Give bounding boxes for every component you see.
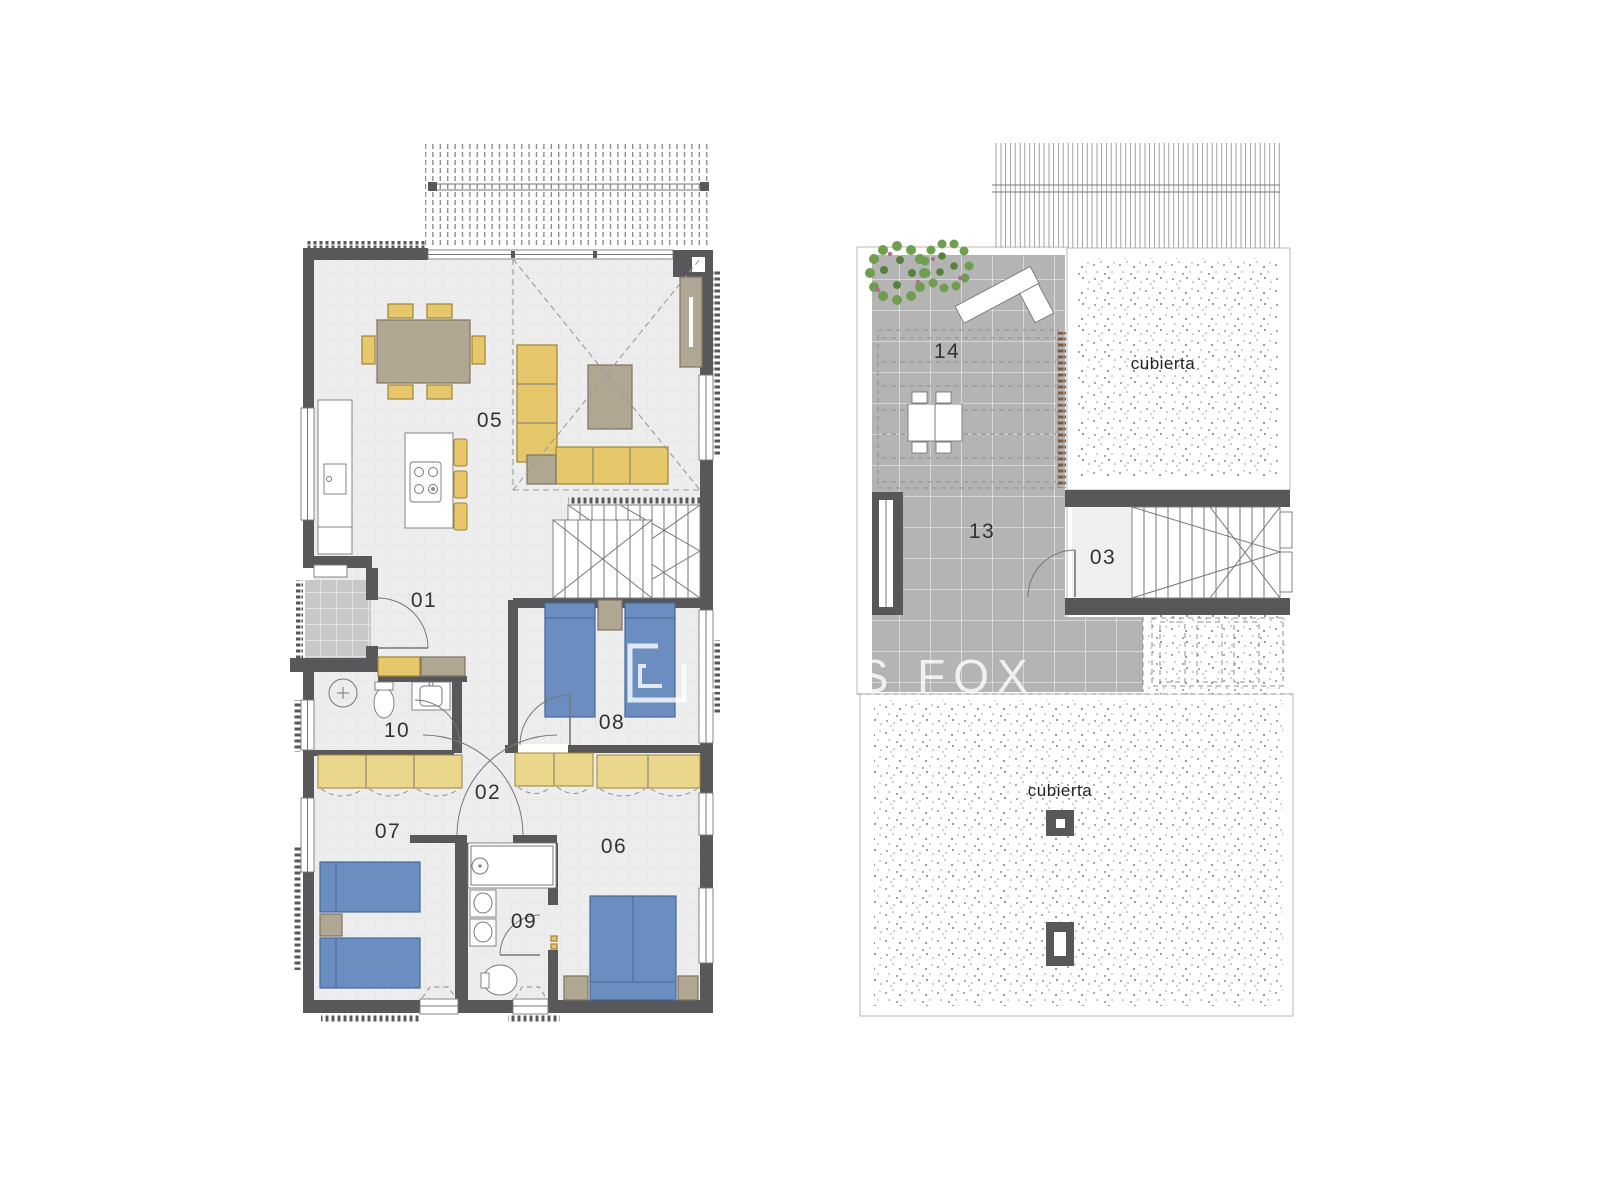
roof-label-cubierta-bottom: cubierta — [1028, 781, 1093, 800]
dining-chair — [388, 304, 413, 318]
wardrobe — [318, 755, 462, 788]
kitchen-appliance — [318, 527, 352, 554]
terrace-wall-window — [872, 492, 903, 615]
entry-bench — [378, 657, 420, 676]
ground-floor-plan: 05 01 10 02 07 08 06 09 — [290, 142, 720, 1022]
bar-stool — [454, 471, 467, 498]
room-label-07: 07 — [375, 820, 401, 843]
pergola-slats — [992, 143, 1280, 248]
room-label-13: 13 — [969, 520, 995, 543]
floor-plan-sheet: 05 01 10 02 07 08 06 09 — [0, 0, 1600, 1200]
outdoor-chair — [912, 392, 927, 403]
dining-chair — [472, 336, 485, 364]
dining-chair — [388, 385, 413, 399]
pergola-post — [700, 182, 709, 191]
cooktop — [410, 462, 441, 502]
outdoor-chair — [936, 392, 951, 403]
roof-terrace-plan: 14 13 03 cubierta cubierta — [857, 143, 1293, 1016]
room-label-02: 02 — [475, 781, 501, 804]
stairs-ground — [553, 505, 700, 598]
dining-chair — [362, 336, 375, 364]
room-label-08: 08 — [599, 711, 625, 734]
bar-stool — [454, 439, 467, 466]
kitchen-sink — [324, 464, 346, 494]
nightstand — [678, 976, 698, 1000]
stairs-upper — [1132, 507, 1280, 598]
outdoor-chair — [912, 442, 927, 453]
room-label-01: 01 — [411, 589, 437, 612]
room-label-10: 10 — [384, 719, 410, 742]
side-table — [527, 455, 556, 484]
roof-label-cubierta-top: cubierta — [1131, 354, 1196, 373]
room-label-06: 06 — [601, 835, 627, 858]
stairwell-03 — [1028, 490, 1292, 615]
room-label-09: 09 — [511, 910, 537, 933]
room-label-03: 03 — [1090, 546, 1116, 569]
toilet — [374, 688, 394, 718]
nightstand — [320, 914, 342, 936]
entry-cabinet — [421, 657, 465, 676]
sofa — [556, 447, 668, 484]
pergola-hatch — [425, 142, 712, 247]
nightstand — [598, 600, 622, 630]
bar-stool — [454, 503, 467, 530]
pergola-post — [428, 182, 437, 191]
outdoor-chair — [936, 442, 951, 453]
bed — [320, 938, 420, 988]
coffee-table — [588, 365, 632, 429]
dining-chair — [427, 385, 452, 399]
sofa — [517, 345, 557, 462]
room-label-14: 14 — [934, 340, 960, 363]
wall-niche — [692, 257, 705, 272]
nightstand — [564, 976, 588, 1000]
watermark-text: LUCAS FOX — [703, 650, 1036, 702]
dining-table — [377, 320, 470, 383]
floor-plan-drawing: 05 01 10 02 07 08 06 09 — [0, 0, 1600, 1200]
entry-porch — [305, 580, 371, 658]
bed — [320, 862, 420, 912]
dining-chair — [427, 304, 452, 318]
room-label-05: 05 — [477, 409, 503, 432]
